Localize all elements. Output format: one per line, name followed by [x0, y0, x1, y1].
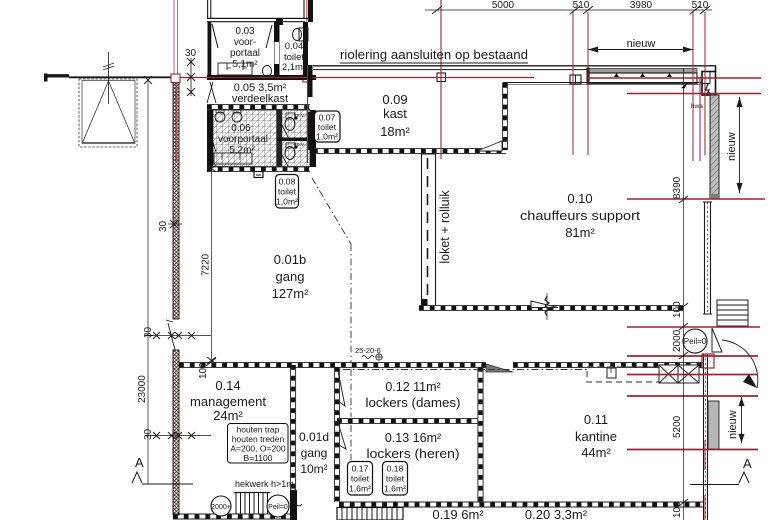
- svg-text:5,2m²: 5,2m²: [229, 145, 255, 156]
- svg-text:18m²: 18m²: [380, 124, 410, 139]
- svg-text:127m²: 127m²: [272, 286, 310, 301]
- svg-text:44m²: 44m²: [581, 445, 611, 460]
- svg-text:0.07: 0.07: [319, 113, 336, 123]
- svg-text:toilet: toilet: [386, 474, 405, 484]
- svg-text:A: A: [135, 455, 144, 470]
- svg-text:10m²: 10m²: [300, 462, 327, 476]
- svg-text:0.03: 0.03: [235, 26, 255, 37]
- svg-text:510: 510: [692, 0, 709, 11]
- svg-text:5200: 5200: [672, 415, 683, 438]
- svg-text:0.11: 0.11: [584, 412, 608, 427]
- svg-text:81m²: 81m²: [565, 225, 595, 240]
- svg-text:hekwerk h>1m.: hekwerk h>1m.: [235, 479, 296, 489]
- svg-text:510: 510: [573, 0, 590, 11]
- svg-text:m.v.: m.v.: [295, 142, 305, 148]
- svg-text:hwa: hwa: [691, 103, 703, 110]
- svg-text:1,0m²: 1,0m²: [276, 197, 298, 207]
- svg-text:0.01d: 0.01d: [299, 430, 329, 444]
- svg-text:riolering aansluiten op bestaa: riolering aansluiten op bestaand: [340, 47, 528, 62]
- svg-text:5000: 5000: [492, 0, 515, 11]
- svg-text:0.17: 0.17: [352, 464, 369, 474]
- svg-text:30: 30: [158, 220, 169, 232]
- svg-text:0.06: 0.06: [231, 123, 251, 134]
- svg-text:nieuw: nieuw: [727, 410, 739, 439]
- svg-text:kantine: kantine: [575, 429, 617, 444]
- svg-text:100: 100: [672, 501, 683, 518]
- svg-text:A: A: [743, 456, 752, 471]
- svg-text:0.14: 0.14: [215, 378, 240, 393]
- svg-text:0.20 3,3m²: 0.20 3,3m²: [525, 507, 588, 520]
- svg-text:B=1100: B=1100: [244, 453, 273, 463]
- svg-text:100: 100: [672, 301, 683, 318]
- svg-text:0.10: 0.10: [567, 191, 592, 206]
- svg-text:23000: 23000: [137, 375, 148, 403]
- svg-text:chauffeurs support: chauffeurs support: [520, 208, 640, 223]
- svg-text:portaal: portaal: [230, 48, 260, 59]
- svg-text:kast: kast: [383, 106, 407, 121]
- svg-text:8390: 8390: [672, 176, 683, 199]
- svg-text:nieuw: nieuw: [627, 38, 656, 50]
- svg-text:gang: gang: [301, 446, 328, 460]
- svg-text:30: 30: [143, 326, 154, 338]
- svg-text:0.19 6m²: 0.19 6m²: [432, 507, 484, 520]
- svg-text:0.09: 0.09: [382, 92, 407, 107]
- svg-text:lockers (heren): lockers (heren): [367, 446, 460, 461]
- svg-text:voorportaal: voorportaal: [218, 134, 268, 145]
- svg-text:loket + rolluik: loket + rolluik: [438, 190, 452, 264]
- svg-text:lockers (dames): lockers (dames): [366, 395, 461, 410]
- svg-text:0.18: 0.18: [387, 464, 404, 474]
- svg-text:2000: 2000: [672, 329, 683, 352]
- svg-text:7220: 7220: [201, 253, 212, 276]
- svg-text:25-20-6: 25-20-6: [355, 346, 381, 355]
- svg-text:Peil=0: Peil=0: [684, 337, 707, 346]
- svg-text:1,6m²: 1,6m²: [384, 484, 406, 494]
- svg-text:30: 30: [143, 428, 154, 440]
- svg-text:0.12 11m²: 0.12 11m²: [385, 380, 440, 394]
- svg-text:2000+: 2000+: [211, 504, 231, 511]
- svg-text:1,0m²: 1,0m²: [316, 132, 338, 142]
- svg-text:houten trap: houten trap: [236, 425, 279, 435]
- svg-text:voor-: voor-: [234, 37, 256, 48]
- svg-text:3980: 3980: [630, 0, 653, 11]
- svg-text:gang: gang: [276, 269, 305, 284]
- svg-text:30: 30: [185, 48, 197, 59]
- svg-text:5,1m²: 5,1m²: [232, 59, 258, 70]
- svg-text:nieuw: nieuw: [726, 132, 738, 161]
- svg-text:toilet: toilet: [278, 187, 297, 197]
- svg-text:0.04: 0.04: [285, 41, 304, 52]
- svg-text:houten treden: houten treden: [232, 434, 285, 444]
- svg-text:0.01b: 0.01b: [274, 252, 307, 267]
- svg-text:verdeelkast: verdeelkast: [232, 93, 288, 105]
- svg-text:toilet: toilet: [351, 474, 370, 484]
- svg-text:1,6m²: 1,6m²: [349, 484, 371, 494]
- svg-text:A=200, O=200: A=200, O=200: [230, 444, 286, 454]
- svg-text:0.13 16m²: 0.13 16m²: [385, 431, 441, 445]
- svg-text:0.08: 0.08: [279, 177, 296, 187]
- svg-text:24m²: 24m²: [213, 408, 243, 423]
- svg-text:2,1m²: 2,1m²: [282, 62, 306, 73]
- svg-text:toilet: toilet: [318, 122, 337, 132]
- svg-text:management: management: [190, 394, 266, 409]
- svg-text:m.v.: m.v.: [295, 113, 305, 119]
- svg-text:Peil=0: Peil=0: [268, 504, 288, 511]
